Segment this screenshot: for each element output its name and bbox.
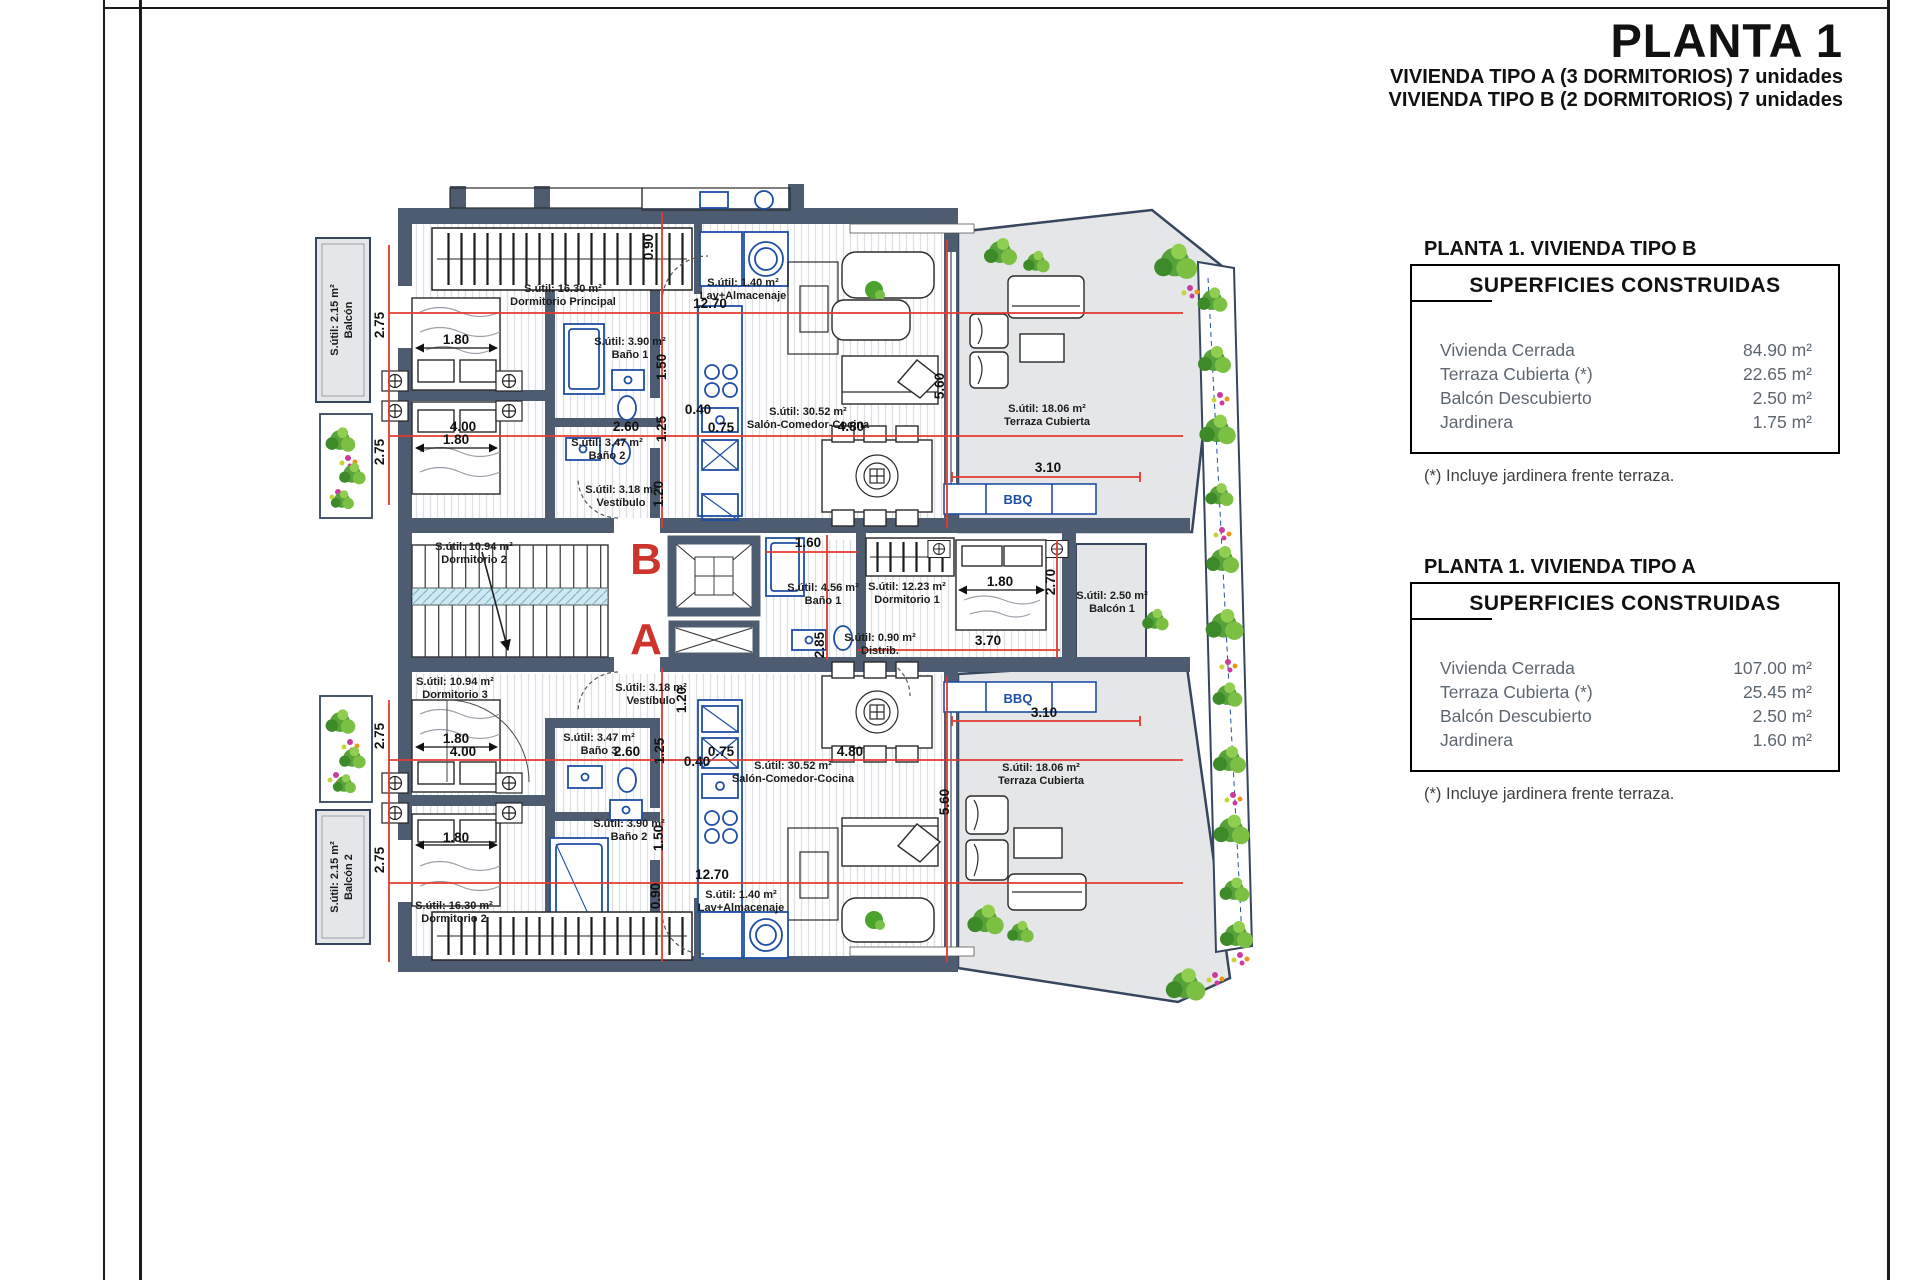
room-name-label: Baño 1 (805, 595, 842, 607)
room-name-label: Dormitorio 2 (441, 554, 506, 566)
dimension-label: 0.90 (648, 883, 663, 909)
room-name-label: Baño 3 (581, 745, 618, 757)
room-area-label: S.útil: 30.52 m² (769, 406, 847, 418)
dimension-label: 12.70 (695, 867, 729, 882)
dimension-label: 1.20 (651, 481, 666, 507)
room-area-label: S.útil: 12.23 m² (868, 581, 946, 593)
room-name-label: Terraza Cubierta (1004, 416, 1091, 428)
dimension-label: 0.40 (684, 754, 710, 769)
dimension-label: 3.10 (1031, 705, 1057, 720)
room-area-label: S.útil: 3.90 m² (594, 336, 666, 348)
balcony-area-label: S.útil: 2.15 m² (329, 841, 341, 913)
dimension-label: 4.80 (838, 419, 864, 434)
dimension-label: 0.75 (708, 420, 735, 435)
dimension-label: 2.75 (372, 311, 387, 338)
laundry-lower (700, 912, 788, 958)
room-area-label: S.útil: 1.40 m² (705, 889, 777, 901)
dimension-label: 3.70 (975, 633, 1001, 648)
plan-sheet: PLANTA 1 VIVIENDA TIPO A (3 DORMITORIOS)… (0, 0, 1920, 1280)
dimension-label: 4.00 (450, 744, 476, 759)
dimension-label: 2.75 (372, 722, 387, 749)
dimension-label: 1.80 (443, 830, 469, 845)
dimension-label: 0.90 (641, 234, 656, 260)
unit-entrance-letter: A (630, 615, 662, 664)
room-area-label: S.útil: 1.40 m² (707, 277, 779, 289)
room-area-label: S.útil: 18.06 m² (1002, 762, 1080, 774)
dimension-label: 1.80 (443, 432, 469, 447)
room-area-label: S.útil: 18.06 m² (1008, 403, 1086, 415)
elevator-core (672, 540, 756, 656)
dimension-label: 2.85 (812, 631, 827, 658)
dimension-label: 5.60 (937, 789, 952, 815)
top-access-band (450, 188, 790, 210)
bbq-label: BBQ (1004, 691, 1033, 706)
dimension-label: 1.20 (674, 687, 689, 713)
room-name-label: Vestíbulo (597, 497, 646, 509)
room-area-label: S.útil: 10.94 m² (416, 676, 494, 688)
dimension-label: 2.75 (372, 846, 387, 873)
balcony-name-label: Balcón (343, 301, 355, 338)
room-area-label: S.útil: 0.90 m² (844, 632, 916, 644)
room-area-label: S.útil: 3.47 m² (563, 732, 635, 744)
dimension-label: 0.75 (708, 744, 735, 759)
room-area-label: S.útil: 2.50 m² (1076, 590, 1148, 602)
dimension-label: 1.50 (651, 825, 666, 851)
dimension-label: 1.25 (654, 415, 669, 442)
room-name-label: Dormitorio Principal (510, 296, 616, 308)
dimension-label: 2.75 (372, 438, 387, 465)
room-area-label: S.útil: 10.94 m² (435, 541, 513, 553)
dimension-label: 12.70 (693, 296, 727, 311)
balcony-area-label: S.útil: 2.15 m² (329, 284, 341, 356)
room-name-label: Salón-Comedor-Cocina (732, 773, 855, 785)
floor-plan-drawing: S.útil: 16.30 m²Dormitorio PrincipalS.út… (0, 0, 1920, 1280)
dimension-label: 3.10 (1035, 460, 1061, 475)
bathroom-3-fixtures (568, 766, 636, 792)
room-name-label: Baño 2 (589, 450, 626, 462)
dimension-label: 1.50 (654, 354, 669, 380)
room-area-label: S.útil: 3.18 m² (585, 484, 657, 496)
dimension-label: 2.60 (614, 744, 640, 759)
room-name-label: Dormitorio 3 (422, 689, 487, 701)
room-area-label: S.útil: 16.30 m² (524, 283, 602, 295)
dimension-label: 2.60 (613, 419, 639, 434)
balcony-name-label: Balcón 2 (343, 854, 355, 900)
room-area-label: S.útil: 16.30 m² (415, 900, 493, 912)
room-name-label: Vestíbulo (627, 695, 676, 707)
unit-entrance-letter: B (630, 535, 662, 584)
room-area-label: S.útil: 30.52 m² (754, 760, 832, 772)
room-name-label: Baño 1 (612, 349, 649, 361)
dimension-label: 4.80 (837, 744, 863, 759)
room-name-label: Dormitorio 1 (874, 594, 939, 606)
room-name-label: Distrib. (861, 645, 899, 657)
bed-dormitorio-2-lower (412, 814, 500, 906)
room-name-label: Lav+Almacenaje (698, 902, 785, 914)
dimension-label: 1.60 (795, 535, 821, 550)
dimension-label: 1.80 (443, 332, 469, 347)
room-area-label: S.útil: 3.47 m² (571, 437, 643, 449)
dimension-label: 0.40 (685, 402, 711, 417)
bbq-label: BBQ (1004, 492, 1033, 507)
room-area-label: S.útil: 4.56 m² (787, 582, 859, 594)
room-name-label: Dormitorio 2 (421, 913, 486, 925)
dimension-label: 1.25 (652, 737, 667, 764)
room-name-label: Terraza Cubierta (998, 775, 1085, 787)
dimension-label: 1.80 (987, 574, 1013, 589)
dimension-label: 2.70 (1043, 569, 1058, 595)
room-name-label: Balcón 1 (1089, 603, 1135, 615)
room-name-label: Baño 2 (611, 831, 648, 843)
dimension-label: 5.60 (932, 373, 947, 399)
